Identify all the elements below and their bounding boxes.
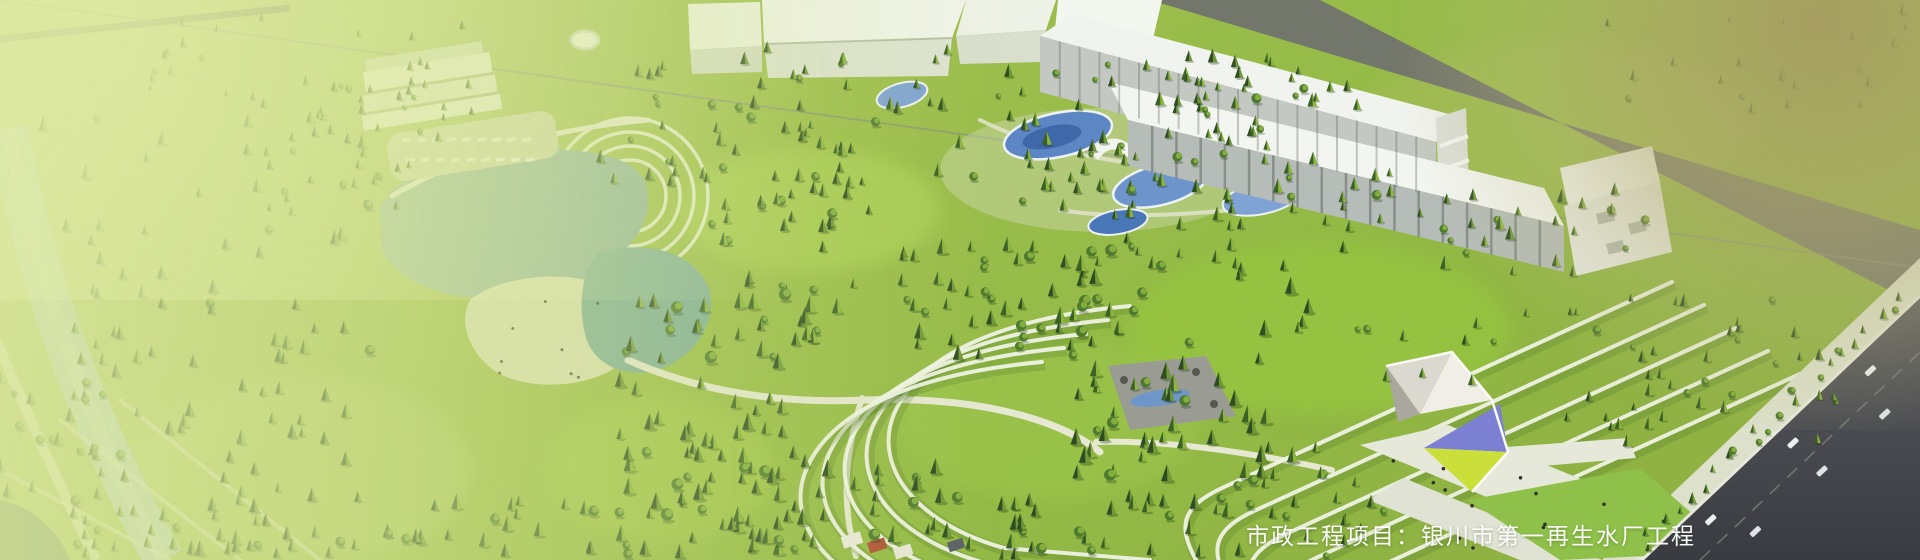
top-right-haze — [1340, 0, 1920, 430]
hero-banner: 市政工程项目：银川市第一再生水厂工程 — [0, 0, 1920, 560]
project-caption: 市政工程项目：银川市第一再生水厂工程 — [1246, 517, 1696, 551]
aerial-rendering — [0, 0, 1920, 560]
